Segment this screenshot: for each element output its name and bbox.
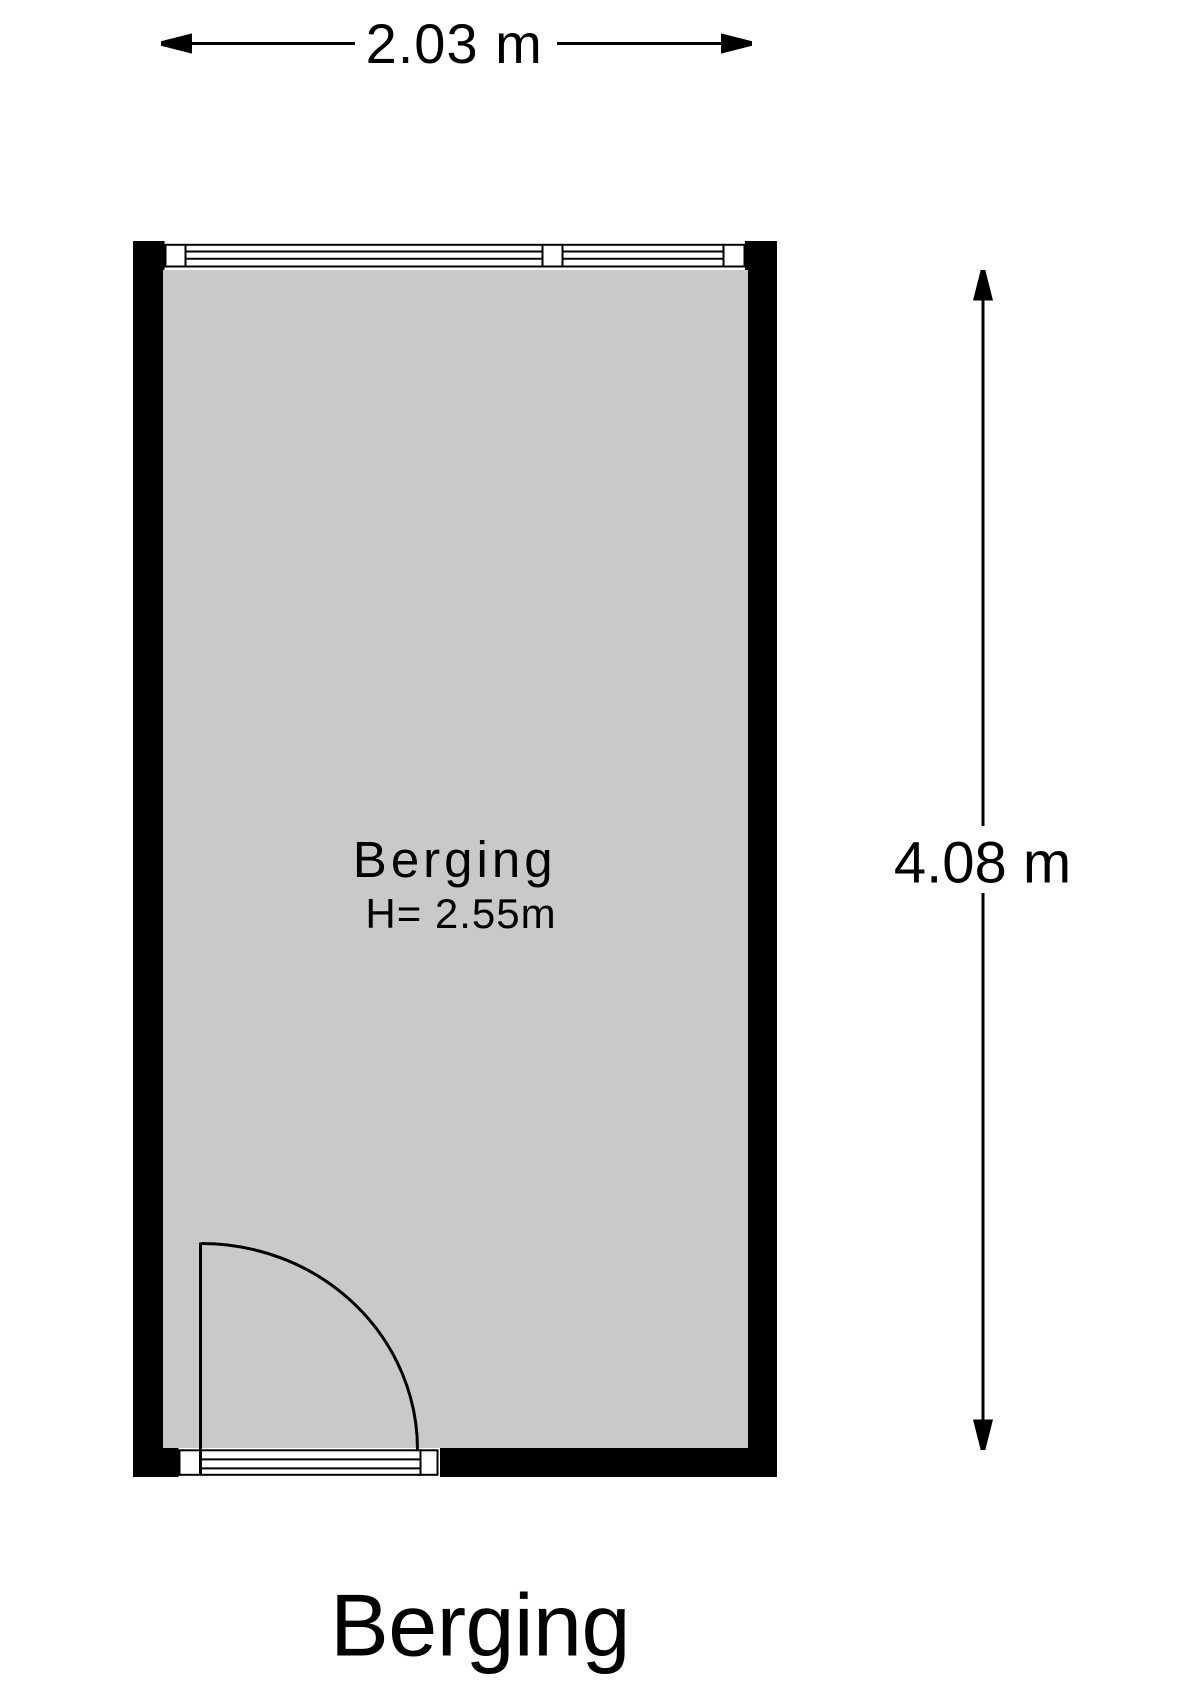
svg-text:H= 2.55m: H= 2.55m (365, 890, 556, 937)
svg-text:Berging: Berging (330, 1576, 630, 1675)
svg-text:4.08 m: 4.08 m (894, 831, 1071, 896)
svg-text:Berging: Berging (353, 831, 557, 888)
svg-text:2.03 m: 2.03 m (366, 12, 543, 75)
